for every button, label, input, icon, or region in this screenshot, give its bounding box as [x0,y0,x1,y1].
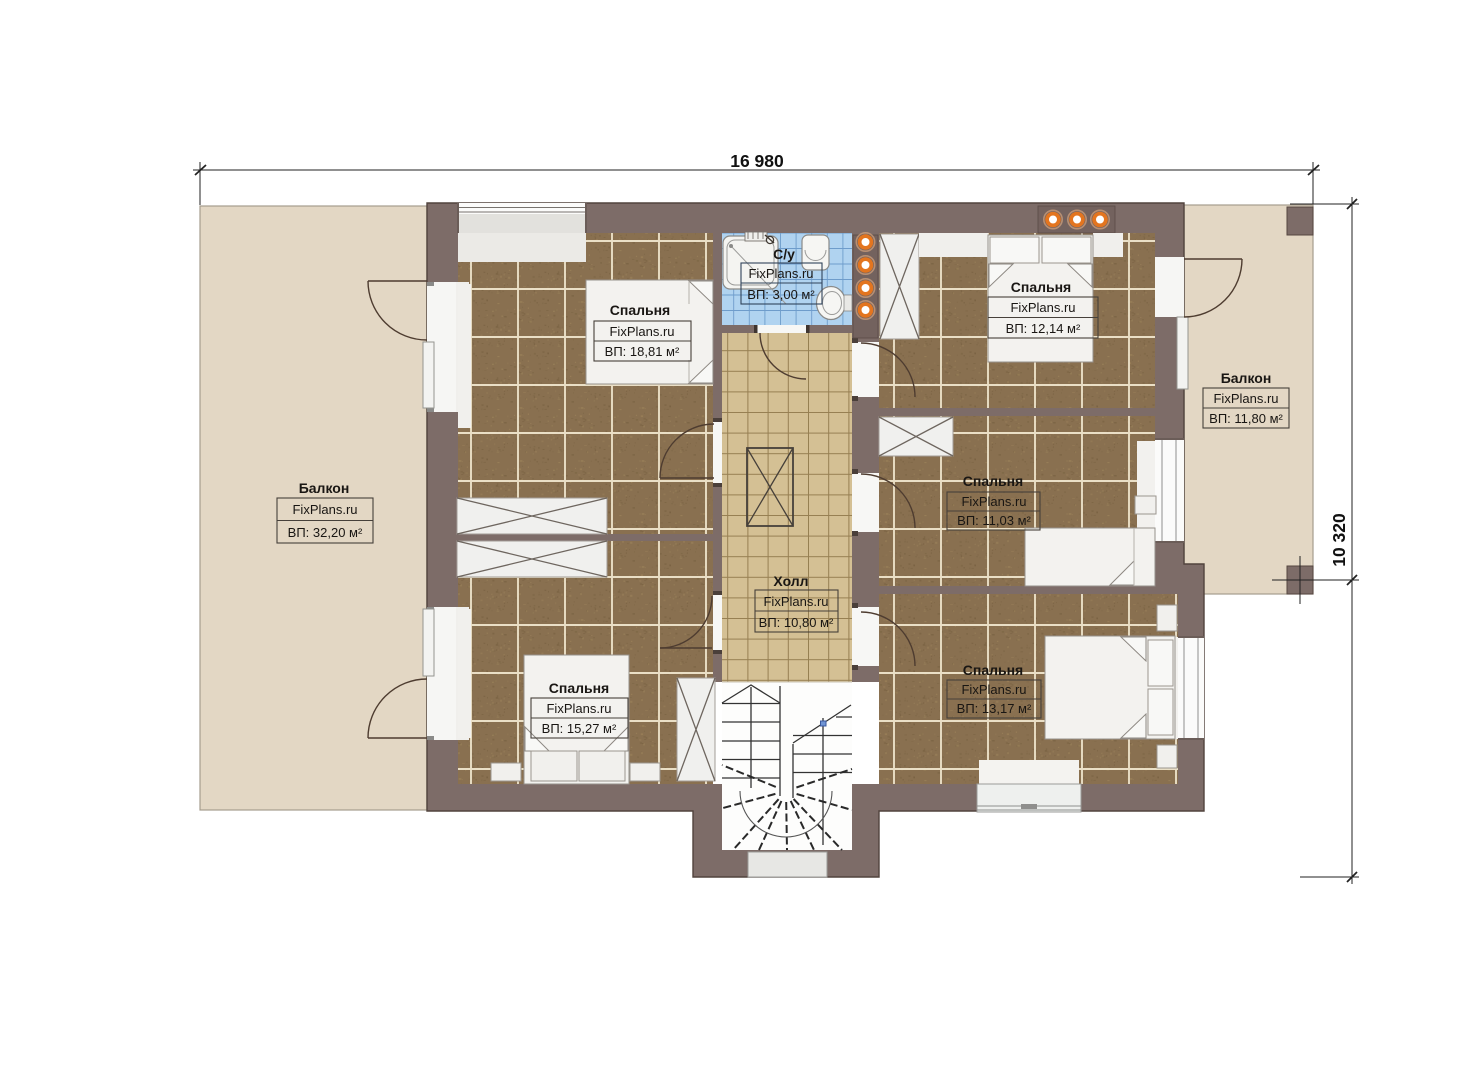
svg-text:FixPlans.ru: FixPlans.ru [763,594,828,609]
svg-text:Спальня: Спальня [1011,279,1071,295]
svg-text:Балкон: Балкон [299,480,350,496]
svg-text:FixPlans.ru: FixPlans.ru [961,682,1026,697]
svg-text:FixPlans.ru: FixPlans.ru [748,266,813,281]
svg-text:FixPlans.ru: FixPlans.ru [292,502,357,517]
svg-text:С/у: С/у [773,246,795,262]
svg-text:ВП: 3,00 м²: ВП: 3,00 м² [747,287,815,302]
svg-text:ВП: 10,80 м²: ВП: 10,80 м² [759,615,834,630]
svg-text:FixPlans.ru: FixPlans.ru [546,701,611,716]
svg-text:ВП: 12,14 м²: ВП: 12,14 м² [1006,321,1081,336]
svg-text:ВП: 18,81 м²: ВП: 18,81 м² [605,344,680,359]
svg-text:ВП: 15,27 м²: ВП: 15,27 м² [542,721,617,736]
svg-text:ВП: 11,80 м²: ВП: 11,80 м² [1209,411,1283,426]
svg-text:Спальня: Спальня [610,302,670,318]
svg-text:FixPlans.ru: FixPlans.ru [1213,391,1278,406]
svg-text:Спальня: Спальня [963,662,1023,678]
svg-text:16 980: 16 980 [730,151,784,171]
svg-text:ВП: 13,17 м²: ВП: 13,17 м² [957,701,1032,716]
svg-text:Спальня: Спальня [549,680,609,696]
svg-text:10 320: 10 320 [1329,513,1349,567]
svg-text:Балкон: Балкон [1221,370,1272,386]
svg-text:ВП: 11,03 м²: ВП: 11,03 м² [957,513,1031,528]
svg-text:Холл: Холл [773,573,808,589]
svg-text:ВП: 32,20 м²: ВП: 32,20 м² [288,525,363,540]
svg-text:FixPlans.ru: FixPlans.ru [1010,300,1075,315]
svg-text:FixPlans.ru: FixPlans.ru [961,494,1026,509]
svg-text:FixPlans.ru: FixPlans.ru [609,324,674,339]
svg-text:Спальня: Спальня [963,473,1023,489]
